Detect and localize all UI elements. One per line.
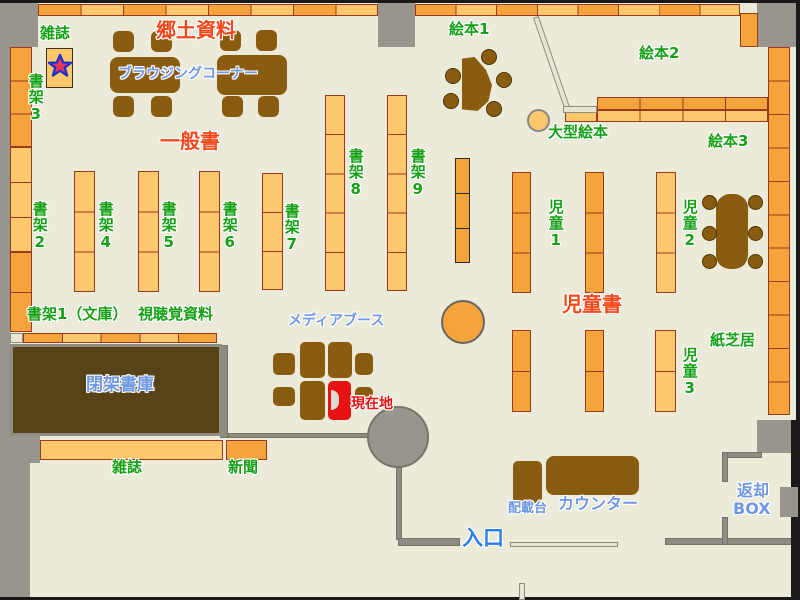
- shelf-shelf4-col: [74, 171, 95, 292]
- label-children-books: 児童書: [562, 294, 622, 315]
- current-location-seat: [331, 390, 339, 410]
- media-booth-seat: [300, 381, 325, 420]
- label-audiovisual: 視聴覚資料: [138, 307, 213, 323]
- label-return-box-1: 返却: [737, 483, 769, 500]
- media-booth-seat: [273, 353, 295, 375]
- label-children-1: 児童1: [547, 199, 563, 250]
- shelf-av-col: [455, 158, 470, 263]
- children-table: [716, 194, 748, 269]
- stool: [702, 254, 717, 269]
- label-entrance: 入口: [462, 527, 504, 549]
- label-closed-stacks: 閉架書庫: [86, 377, 154, 395]
- label-magazines-bottom: 雑誌: [112, 460, 142, 476]
- shelf-magazine-rack: [40, 440, 223, 460]
- label-general-books: 一般書: [160, 131, 220, 152]
- chair: [151, 96, 172, 117]
- label-newspapers: 新聞: [228, 460, 258, 476]
- label-shelf-7: 書架7: [283, 203, 299, 254]
- label-return-box-2: BOX: [733, 501, 771, 518]
- label-shelf-2: 書架2: [31, 201, 47, 252]
- label-current-location: 現在地: [351, 397, 393, 412]
- chair: [256, 30, 277, 51]
- label-children-3: 児童3: [681, 347, 697, 398]
- large-picture-book-bin: [527, 109, 550, 132]
- label-magazines-top: 雑誌: [40, 26, 70, 42]
- label-browsing-corner: ブラウジングコーナー: [118, 67, 258, 82]
- stool: [481, 49, 497, 65]
- shelf-children1-col-lower: [512, 330, 531, 412]
- stool: [486, 101, 502, 117]
- label-picture-books-3: 絵本3: [708, 134, 748, 150]
- label-large-picture-books: 大型絵本: [548, 125, 608, 141]
- stool: [702, 226, 717, 241]
- label-children-2: 児童2: [681, 199, 697, 250]
- round-table: [441, 300, 485, 344]
- loading-desk: [513, 461, 542, 503]
- label-shelf-5: 書架5: [160, 201, 176, 252]
- shelf-top-row-right: [415, 4, 740, 16]
- label-picture-books-1: 絵本1: [449, 22, 489, 38]
- diagonal-divider: [533, 16, 570, 109]
- star-icon: [48, 53, 72, 79]
- chair: [222, 96, 243, 117]
- shelf-left-wall-shelf-b: [10, 147, 32, 252]
- shelf-shelf8-col: [325, 95, 345, 291]
- shelf-shelf7-col: [262, 173, 283, 290]
- shelf-top-right-corner: [740, 13, 758, 47]
- stool: [748, 254, 763, 269]
- door-post: [519, 583, 525, 600]
- label-shelf-1-bunko: 書架1（文庫）: [27, 307, 127, 323]
- chair: [113, 31, 134, 52]
- stool: [445, 68, 461, 84]
- shelf-shelf9-col: [387, 95, 407, 291]
- stool: [748, 226, 763, 241]
- label-counter: カウンター: [558, 496, 638, 513]
- chair: [258, 96, 279, 117]
- label-picture-books-2: 絵本2: [639, 46, 679, 62]
- media-booth-seat: [273, 387, 295, 406]
- chair: [113, 96, 134, 117]
- round-pillar: [367, 406, 429, 468]
- shelf-children-col-light-upper: [656, 172, 676, 293]
- shelf-shelf6-col: [199, 171, 220, 292]
- shelf-av-row: [23, 333, 217, 343]
- shelf-ehon-row-bottom: [597, 110, 768, 122]
- shelf-children3-col-lower: [655, 330, 676, 412]
- label-shelf-4: 書架4: [97, 201, 113, 252]
- label-shelf-9: 書架9: [409, 148, 425, 199]
- label-shelf-6: 書架6: [221, 201, 237, 252]
- shelf-children1-col-upper: [512, 172, 531, 293]
- media-booth-seat: [300, 342, 325, 378]
- media-booth-seat: [328, 342, 352, 378]
- stool: [748, 195, 763, 210]
- overlay-root: 雑誌書架3書架2書架4書架5書架6書架7書架8書架9絵本1絵本2絵本3大型絵本児…: [0, 0, 800, 600]
- stool: [702, 195, 717, 210]
- label-loading-desk: 配載台: [508, 502, 547, 516]
- shelf-av-row-cream: [10, 333, 23, 343]
- shelf-children2-col-upper: [585, 172, 604, 293]
- label-kamishibai: 紙芝居: [710, 333, 755, 349]
- shelf-ehon-row-top: [597, 97, 768, 110]
- label-shelf-8: 書架8: [347, 148, 363, 199]
- shelf-shelf5-col: [138, 171, 159, 292]
- divider-foot: [563, 106, 597, 113]
- shelf-right-wall-shelf: [768, 47, 790, 415]
- current-location-booth: [328, 381, 351, 420]
- label-local-materials: 郷土資料: [156, 20, 236, 41]
- shelf-top-row-left: [38, 4, 378, 16]
- stool: [443, 93, 459, 109]
- stool: [496, 72, 512, 88]
- label-media-booth: メディアブース: [288, 314, 384, 329]
- shelf-newspaper-rack: [226, 440, 267, 460]
- label-shelf-3: 書架3: [27, 73, 43, 124]
- media-booth-seat: [355, 353, 373, 375]
- counter-desk: [546, 456, 639, 495]
- shelf-children2-col-lower: [585, 330, 604, 412]
- library-floor-map: 雑誌書架3書架2書架4書架5書架6書架7書架8書架9絵本1絵本2絵本3大型絵本児…: [0, 0, 800, 600]
- entrance-mat: [510, 542, 618, 547]
